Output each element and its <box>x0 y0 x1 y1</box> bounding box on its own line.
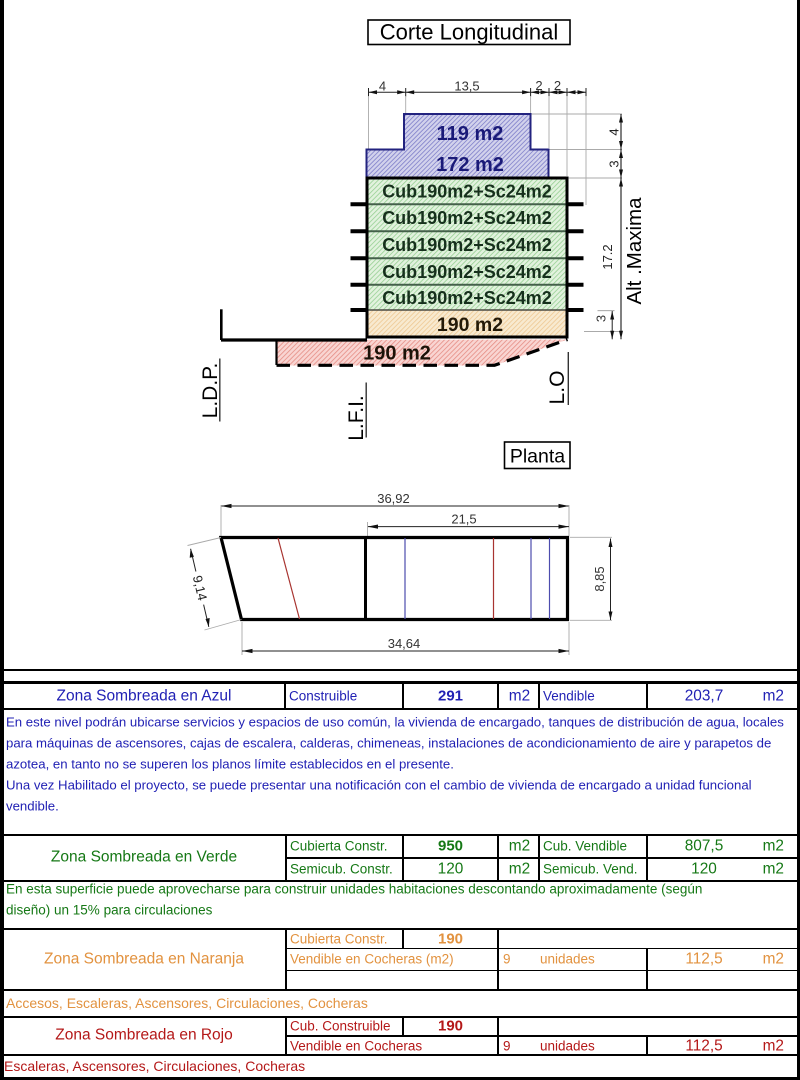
svg-text:L.F.I.: L.F.I. <box>345 395 368 441</box>
svg-text:3: 3 <box>607 160 622 167</box>
svg-text:190 m2: 190 m2 <box>437 314 503 336</box>
svg-text:Cub190m2+Sc24m2: Cub190m2+Sc24m2 <box>382 288 552 308</box>
svg-text:190 m2: 190 m2 <box>363 343 431 365</box>
svg-text:Corte Longitudinal: Corte Longitudinal <box>380 20 559 45</box>
svg-text:L.D.P.: L.D.P. <box>199 363 222 419</box>
svg-text:3: 3 <box>594 315 609 322</box>
svg-text:172 m2: 172 m2 <box>436 154 504 176</box>
svg-text:Cub190m2+Sc24m2: Cub190m2+Sc24m2 <box>382 182 552 202</box>
svg-text:13,5: 13,5 <box>454 79 479 94</box>
svg-text:Cub190m2+Sc24m2: Cub190m2+Sc24m2 <box>382 208 552 228</box>
svg-text:36,92: 36,92 <box>377 491 410 506</box>
svg-text:2: 2 <box>535 78 542 93</box>
svg-text:21,5: 21,5 <box>451 511 476 526</box>
svg-text:L.O: L.O <box>546 371 569 405</box>
svg-text:119 m2: 119 m2 <box>437 123 504 145</box>
svg-text:9,14: 9,14 <box>190 574 210 602</box>
svg-text:Cub190m2+Sc24m2: Cub190m2+Sc24m2 <box>382 262 552 282</box>
svg-text:4: 4 <box>607 128 622 135</box>
svg-text:Alt .Maxima: Alt .Maxima <box>623 197 646 305</box>
svg-text:2: 2 <box>554 78 561 93</box>
svg-text:4: 4 <box>379 79 386 94</box>
svg-text:8,85: 8,85 <box>592 566 607 591</box>
svg-text:34,64: 34,64 <box>388 636 421 651</box>
svg-text:Cub190m2+Sc24m2: Cub190m2+Sc24m2 <box>382 235 552 255</box>
svg-text:17.2: 17.2 <box>600 244 615 269</box>
svg-text:Planta: Planta <box>510 446 565 468</box>
